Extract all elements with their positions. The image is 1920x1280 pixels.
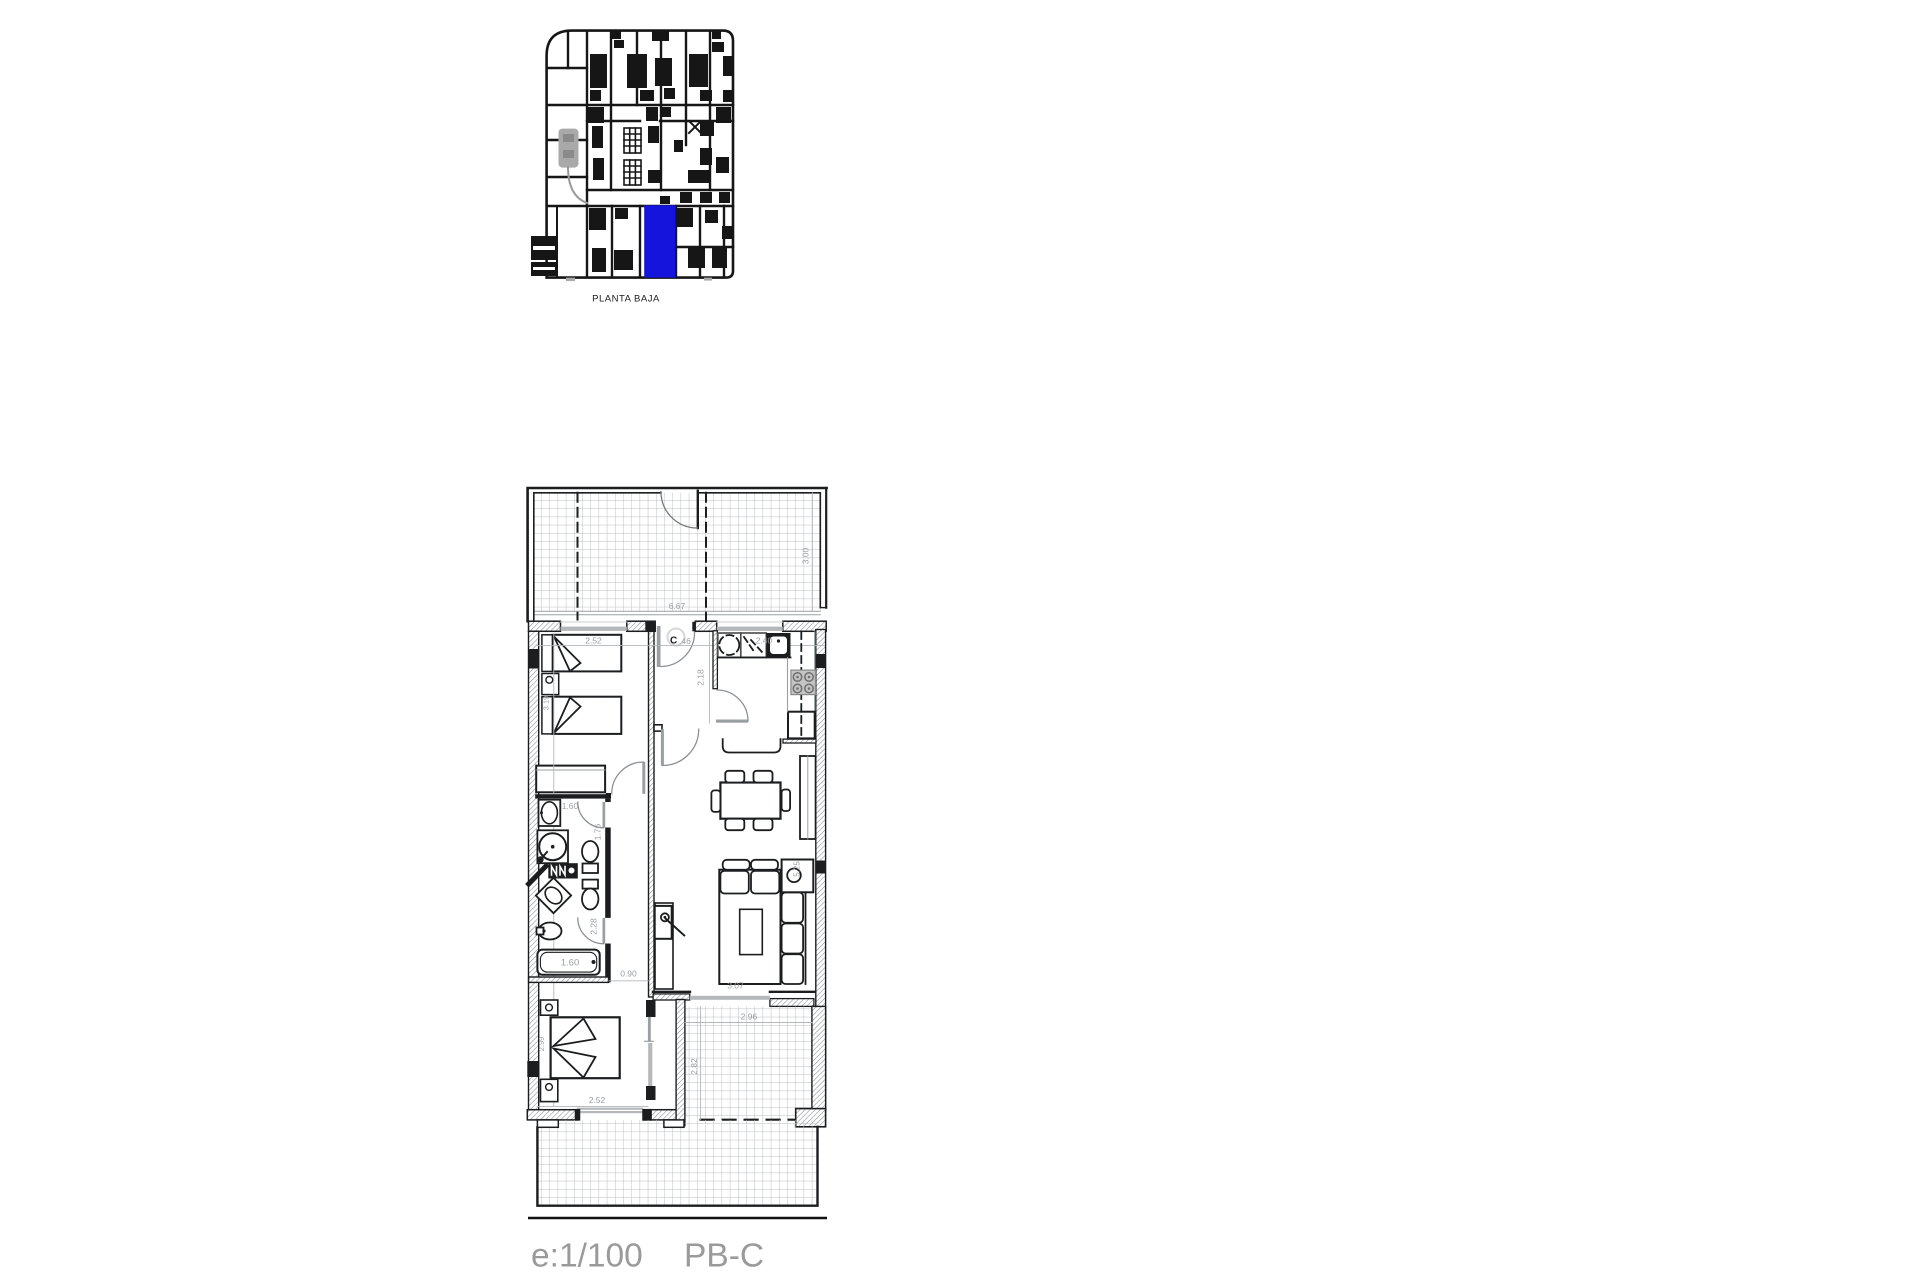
svg-text:1.60: 1.60	[562, 801, 579, 811]
svg-text:C: C	[670, 636, 677, 647]
svg-text:5.25: 5.25	[793, 861, 802, 877]
svg-text:2.40: 2.40	[756, 636, 773, 646]
svg-text:3.00: 3.00	[801, 547, 811, 564]
svg-text:e:1/100: e:1/100	[531, 1238, 643, 1275]
svg-text:PB-C: PB-C	[684, 1238, 764, 1275]
svg-text:2.82: 2.82	[689, 1058, 699, 1075]
svg-text:1.60: 1.60	[561, 958, 580, 969]
svg-text:2.52: 2.52	[585, 636, 602, 646]
svg-text:.46: .46	[679, 636, 691, 646]
svg-text:6.67: 6.67	[669, 601, 686, 611]
svg-text:3.07: 3.07	[727, 981, 744, 991]
svg-text:0.90: 0.90	[620, 969, 637, 979]
svg-text:2.28: 2.28	[589, 918, 599, 935]
svg-text:3.19: 3.19	[542, 696, 551, 711]
svg-text:2.18: 2.18	[696, 669, 706, 686]
svg-text:2.96: 2.96	[741, 1012, 758, 1022]
svg-text:PLANTA BAJA: PLANTA BAJA	[592, 294, 660, 305]
svg-text:1.76: 1.76	[593, 823, 603, 840]
svg-text:2.99: 2.99	[537, 1037, 546, 1052]
svg-text:2.52: 2.52	[589, 1095, 606, 1105]
